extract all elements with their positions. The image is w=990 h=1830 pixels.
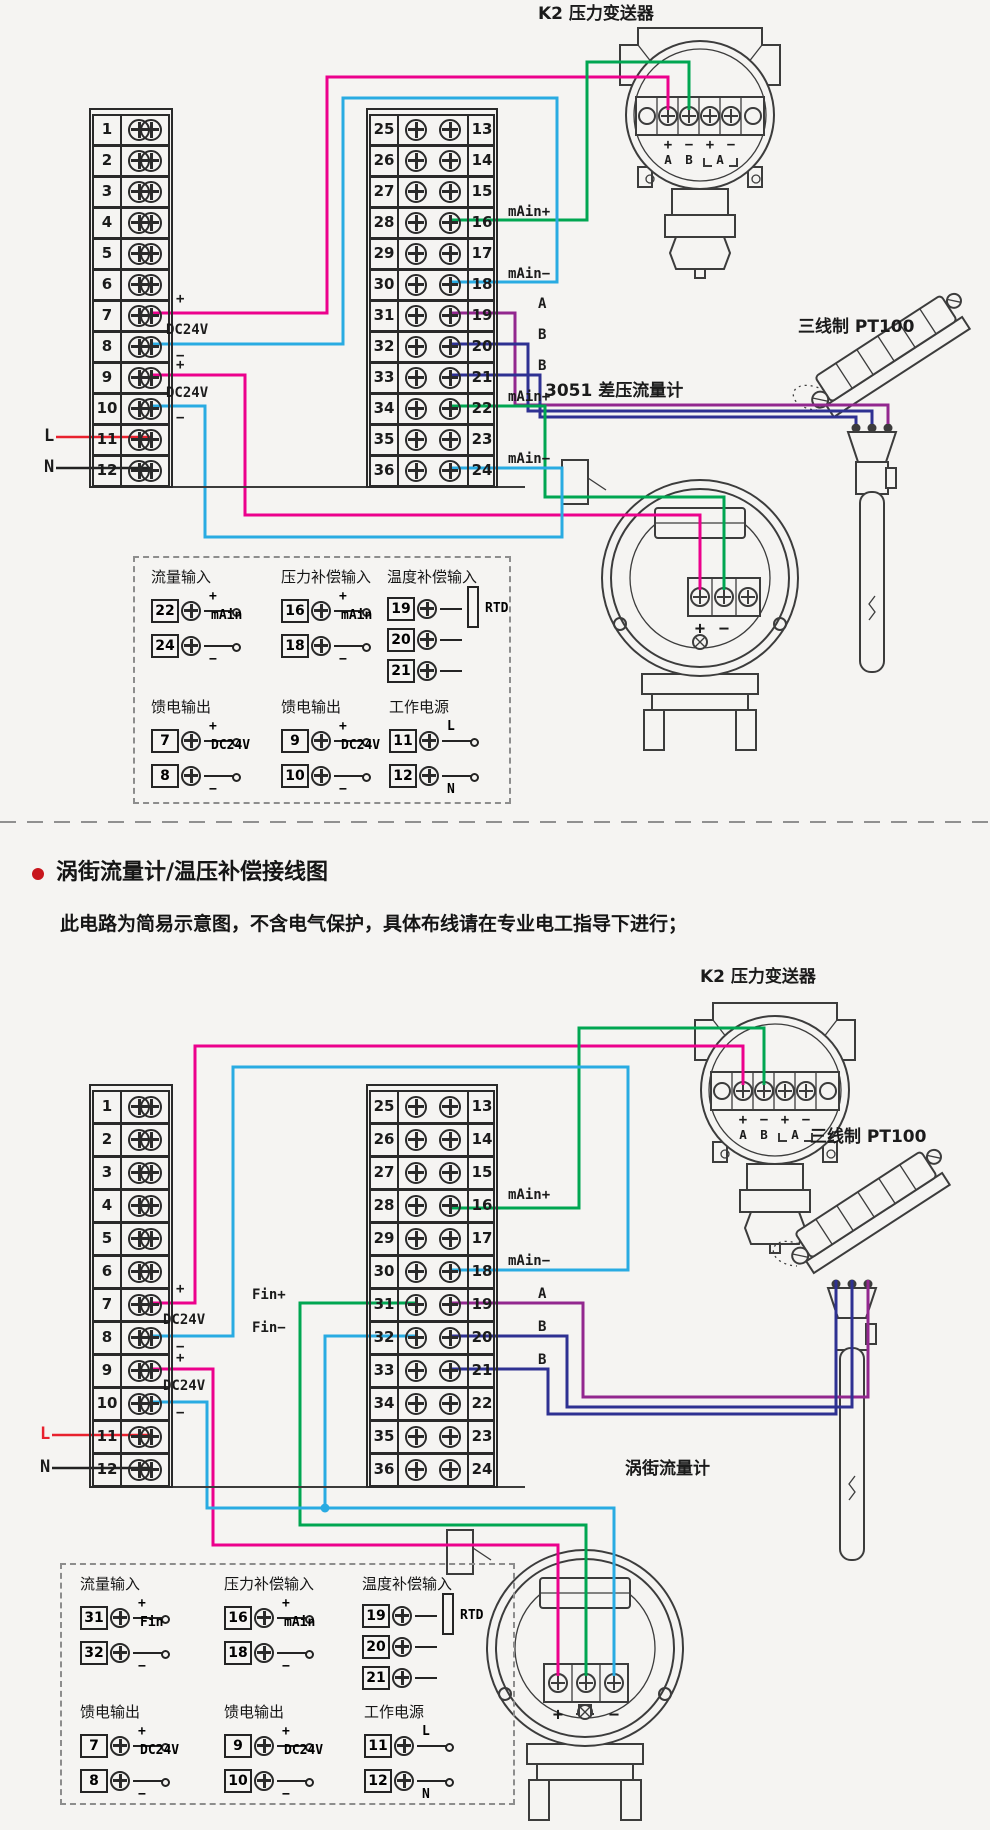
legend-polarity-label: + [339, 720, 347, 733]
screw-terminal-icon [439, 212, 461, 234]
legend-group-title: 流量输入 [151, 570, 271, 585]
screw-terminal-icon [405, 1426, 427, 1448]
section-title: 涡街流量计/温压补偿接线图 [56, 860, 328, 886]
terminal-number-left: 32 [371, 1323, 399, 1353]
screw-terminal-icon [405, 243, 427, 265]
terminal-row: 34 22 [369, 391, 495, 422]
screw-slot [399, 457, 433, 485]
screw-terminal-icon [392, 1668, 412, 1688]
rtd-label: RTD [485, 602, 508, 615]
screw-slot [433, 240, 467, 268]
legend-group-title: 温度补偿输入 [362, 1577, 492, 1592]
terminal-number-left: 29 [371, 240, 399, 268]
screw-terminal-icon [439, 1360, 461, 1382]
legend-terminal-row: 20 [362, 1631, 492, 1662]
terminal-row: 7 [92, 1286, 170, 1319]
screw-slot [433, 1092, 467, 1122]
legend-polarity-label: − [138, 1788, 146, 1801]
d2-k2-port-a2: A [791, 1128, 799, 1142]
d1-dc24v-78-label: DC24V [166, 323, 208, 338]
terminal-number: 10 [94, 1389, 122, 1419]
legend-polarity-label: + [138, 1597, 146, 1610]
terminal-number: 12 [94, 457, 122, 485]
terminal-number: 5 [94, 240, 122, 268]
screw-terminal-icon [140, 460, 162, 482]
screw-terminal-icon [140, 181, 162, 203]
legend-signal-label: DC24V [341, 739, 380, 752]
terminal-number-left: 35 [371, 1422, 399, 1452]
legend-polarity-label: + [209, 720, 217, 733]
legend-group-feed-output-1: 馈电输出 7 + 8 − [80, 1705, 210, 1798]
terminal-row: 2 [92, 143, 170, 174]
wire-pin-icon [417, 1745, 447, 1747]
d1-k2-label: K2 压力变送器 [538, 5, 654, 24]
screw-slot [399, 1389, 433, 1419]
terminal-number-left: 34 [371, 395, 399, 423]
terminal-number-left: 31 [371, 302, 399, 330]
wire-pin-icon [417, 1780, 447, 1782]
terminal-number-right: 23 [467, 426, 495, 454]
legend-group-temp-comp: 温度补偿输入 19 20 21 [362, 1577, 492, 1693]
d1-b20-label: B [538, 328, 546, 343]
screw-terminal-icon [311, 766, 331, 786]
screw-terminal-icon [405, 1360, 427, 1382]
screw-slot [433, 116, 467, 144]
screw-slot [433, 1290, 467, 1320]
wire2-b20-to-pt100 [450, 1280, 852, 1407]
d2-left-terminal-block: 1 2 3 [89, 1084, 173, 1488]
legend-terminal-number: 22 [151, 599, 179, 623]
terminal-number-left: 32 [371, 333, 399, 361]
terminal-row: 4 [92, 205, 170, 236]
screw-terminal-icon [439, 119, 461, 141]
terminal-number: 8 [94, 333, 122, 361]
screw-terminal-icon [140, 429, 162, 451]
terminal-row: 6 [92, 267, 170, 298]
d2-dc24v-910-label: DC24V [163, 1379, 205, 1394]
screw-slot [433, 1125, 467, 1155]
screw-terminal-icon [254, 1771, 274, 1791]
legend-terminal-row: 21 [362, 1662, 492, 1693]
terminal-number-right: 16 [467, 1191, 495, 1221]
legend-terminal-row: 24 − [151, 628, 271, 663]
terminal-number: 11 [94, 426, 122, 454]
terminal-number: 11 [94, 1422, 122, 1452]
legend-polarity-label: − [282, 1660, 290, 1673]
screw-terminal-icon [405, 1393, 427, 1415]
screw-slot [433, 271, 467, 299]
terminal-row: 29 17 [369, 236, 495, 267]
legend-terminal-number: 21 [387, 659, 415, 683]
legend-terminal-row: 12 N [364, 1763, 494, 1798]
screw-terminal-icon [405, 150, 427, 172]
terminal-number: 2 [94, 147, 122, 175]
screw-slot [399, 1191, 433, 1221]
terminal-number-right: 13 [467, 1092, 495, 1122]
wire-pin-icon [440, 608, 462, 610]
terminal-row: 32 20 [369, 329, 495, 360]
screw-terminal-icon [405, 1294, 427, 1316]
terminal-row: 11 [92, 422, 170, 453]
terminal-row: 36 24 [369, 453, 495, 484]
wire-pin-icon [277, 1652, 307, 1654]
legend-terminal-row: 20 [387, 624, 509, 655]
terminal-row: 31 19 [369, 1286, 495, 1319]
terminal-number-left: 30 [371, 1257, 399, 1287]
legend-terminal-row: 21 [387, 655, 509, 686]
terminal-number-right: 20 [467, 333, 495, 361]
screw-terminal-icon [439, 1228, 461, 1250]
legend-terminal-number: 31 [80, 1606, 108, 1630]
screw-slot [399, 271, 433, 299]
screw-terminal-icon [181, 636, 201, 656]
legend-polarity-label: L [422, 1725, 430, 1738]
section-note: 此电路为简易示意图，不含电气保护，具体布线请在专业电工指导下进行； [60, 913, 687, 936]
terminal-row: 33 21 [369, 360, 495, 391]
terminal-row: 2 [92, 1121, 170, 1154]
legend-polarity-label: − [209, 783, 217, 796]
terminal-row: 5 [92, 236, 170, 267]
wire-pin-icon [204, 775, 234, 777]
terminal-row: 34 22 [369, 1385, 495, 1418]
legend-polarity-label: − [209, 653, 217, 666]
terminal-row: 3 [92, 174, 170, 205]
screw-terminal-icon [392, 1637, 412, 1657]
screw-slot [399, 209, 433, 237]
wire2-b21-to-pt100 [450, 1280, 836, 1414]
screw-terminal-icon [181, 731, 201, 751]
screw-slot [433, 1224, 467, 1254]
wire-pin-icon [204, 645, 234, 647]
screw-terminal-icon [439, 150, 461, 172]
screw-terminal-icon [405, 336, 427, 358]
legend-terminal-number: 8 [151, 764, 179, 788]
screw-terminal-icon [405, 119, 427, 141]
wire-pin-icon [334, 645, 364, 647]
screw-slot [399, 1224, 433, 1254]
terminal-number-left: 36 [371, 1455, 399, 1485]
screw-terminal-icon [110, 1771, 130, 1791]
terminal-row: 35 23 [369, 1418, 495, 1451]
terminal-number-right: 14 [467, 147, 495, 175]
terminal-row: 4 [92, 1187, 170, 1220]
legend-polarity-label: + [209, 590, 217, 603]
screw-terminal-icon [140, 1129, 162, 1151]
terminal-number: 7 [94, 1290, 122, 1320]
screw-terminal-icon [405, 1096, 427, 1118]
terminal-number-right: 22 [467, 1389, 495, 1419]
legend-terminal-number: 7 [151, 729, 179, 753]
terminal-row: 12 [92, 453, 170, 484]
terminal-row: 9 [92, 1352, 170, 1385]
terminal-number: 9 [94, 364, 122, 392]
screw-slot [399, 1422, 433, 1452]
legend-terminal-number: 20 [362, 1635, 390, 1659]
terminal-row: 5 [92, 1220, 170, 1253]
screw-terminal-icon [417, 599, 437, 619]
d2-neutral-label: N [40, 1458, 50, 1477]
terminal-number-right: 14 [467, 1125, 495, 1155]
terminal-number-left: 30 [371, 271, 399, 299]
d1-k2-sign4: − [727, 138, 735, 153]
screw-slot [433, 1323, 467, 1353]
legend-terminal-number: 16 [224, 1606, 252, 1630]
terminal-number-right: 19 [467, 1290, 495, 1320]
terminal-number-right: 24 [467, 1455, 495, 1485]
terminal-number-left: 27 [371, 1158, 399, 1188]
rtd-resistor-icon [467, 586, 479, 628]
screw-terminal-icon [311, 731, 331, 751]
legend-group-title: 压力补偿输入 [224, 1577, 354, 1592]
screw-slot [433, 209, 467, 237]
screw-terminal-icon [439, 1327, 461, 1349]
screw-terminal-icon [405, 460, 427, 482]
d1-meter-minus: − [719, 620, 729, 639]
terminal-number: 4 [94, 209, 122, 237]
screw-terminal-icon [439, 1294, 461, 1316]
screw-terminal-icon [110, 1736, 130, 1756]
legend-group-title: 工作电源 [389, 700, 509, 715]
screw-terminal-icon [254, 1736, 274, 1756]
legend-group-title: 流量输入 [80, 1577, 210, 1592]
terminal-number: 12 [94, 1455, 122, 1485]
legend-terminal-row: 8 − [80, 1763, 210, 1798]
screw-slot [433, 1356, 467, 1386]
terminal-number-left: 34 [371, 1389, 399, 1419]
d1-k2-transmitter [620, 28, 780, 278]
screw-terminal-icon [140, 1294, 162, 1316]
screw-slot [433, 457, 467, 485]
screw-slot [399, 1356, 433, 1386]
screw-terminal-icon [140, 1459, 162, 1481]
legend-terminal-row: 10 − [281, 758, 401, 793]
rtd-label: RTD [460, 1609, 483, 1622]
d1-plus9-label: + [176, 358, 184, 373]
terminal-number: 2 [94, 1125, 122, 1155]
screw-terminal-icon [439, 336, 461, 358]
legend-polarity-label: + [282, 1725, 290, 1738]
terminal-number-right: 15 [467, 1158, 495, 1188]
d2-meter-minus: − [609, 1706, 619, 1725]
screw-terminal-icon [394, 1771, 414, 1791]
legend-group-feed-output-2: 馈电输出 9 + 10 − [281, 700, 401, 793]
legend-terminal-number: 21 [362, 1666, 390, 1690]
terminal-number-left: 36 [371, 457, 399, 485]
terminal-number: 1 [94, 1092, 122, 1122]
legend-group-pressure-comp: 压力补偿输入 16 + 18 − [281, 570, 401, 663]
terminal-number: 5 [94, 1224, 122, 1254]
screw-terminal-icon [181, 601, 201, 621]
terminal-number-left: 31 [371, 1290, 399, 1320]
d2-k2-port-a: A [739, 1128, 747, 1142]
legend-terminal-number: 10 [224, 1769, 252, 1793]
screw-terminal-icon [394, 1736, 414, 1756]
terminal-row: 25 13 [369, 1088, 495, 1121]
screw-terminal-icon [140, 1426, 162, 1448]
screw-terminal-icon [405, 429, 427, 451]
screw-terminal-icon [140, 243, 162, 265]
d1-minus10-label: − [176, 411, 184, 426]
d1-main18-label: mAin− [508, 267, 550, 282]
terminal-row: 11 [92, 1418, 170, 1451]
screw-terminal-icon [439, 460, 461, 482]
terminal-number: 6 [94, 271, 122, 299]
terminal-row: 27 15 [369, 1154, 495, 1187]
legend-terminal-row: 12 N [389, 758, 509, 793]
screw-terminal-icon [405, 398, 427, 420]
legend-terminal-row: 18 − [224, 1635, 354, 1670]
terminal-number-left: 26 [371, 1125, 399, 1155]
d1-a19-label: A [538, 297, 546, 312]
terminal-row: 31 19 [369, 298, 495, 329]
screw-slot [433, 302, 467, 330]
legend-group-feed-output-2: 馈电输出 9 + 10 − [224, 1705, 354, 1798]
terminal-row: 8 [92, 329, 170, 360]
terminal-row: 26 14 [369, 1121, 495, 1154]
screw-terminal-icon [140, 1327, 162, 1349]
d2-b21-label: B [538, 1353, 546, 1368]
d2-plus7-label: + [176, 1282, 184, 1297]
screw-terminal-icon [181, 766, 201, 786]
screw-slot [433, 395, 467, 423]
screw-terminal-icon [392, 1606, 412, 1626]
legend-terminal-number: 19 [362, 1604, 390, 1628]
d1-k2-port-b: B [685, 153, 693, 167]
terminal-row: 33 21 [369, 1352, 495, 1385]
d1-neutral-label: N [44, 458, 54, 477]
terminal-row: 1 [92, 1088, 170, 1121]
legend-signal-label: DC24V [211, 739, 250, 752]
screw-terminal-icon [405, 1162, 427, 1184]
d2-main16-label: mAin+ [508, 1188, 550, 1203]
screw-terminal-icon [439, 274, 461, 296]
terminal-number-right: 18 [467, 271, 495, 299]
terminal-number-right: 23 [467, 1422, 495, 1452]
d1-meter-label: 3051 差压流量计 [545, 382, 683, 401]
d2-main18-label: mAin− [508, 1254, 550, 1269]
terminal-number-right: 17 [467, 240, 495, 268]
terminal-number-right: 21 [467, 1356, 495, 1386]
d1-k2-sign3: + [706, 138, 714, 153]
screw-terminal-icon [311, 601, 331, 621]
screw-terminal-icon [405, 181, 427, 203]
legend-group-title: 工作电源 [364, 1705, 494, 1720]
wire-pin-icon [334, 775, 364, 777]
screw-terminal-icon [140, 274, 162, 296]
legend-group-power: 工作电源 11 L 12 N [389, 700, 509, 793]
legend-terminal-number: 16 [281, 599, 309, 623]
wire-pin-icon [442, 740, 472, 742]
terminal-number-left: 29 [371, 1224, 399, 1254]
d1-meter-plus: + [695, 620, 705, 639]
screw-slot [399, 1290, 433, 1320]
legend-group-power: 工作电源 11 L 12 N [364, 1705, 494, 1798]
screw-terminal-icon [439, 243, 461, 265]
screw-slot [399, 395, 433, 423]
terminal-row: 7 [92, 298, 170, 329]
screw-terminal-icon [417, 630, 437, 650]
terminal-row: 35 23 [369, 422, 495, 453]
legend-group-title: 馈电输出 [224, 1705, 354, 1720]
terminal-row: 28 16 [369, 1187, 495, 1220]
terminal-number-left: 27 [371, 178, 399, 206]
legend-terminal-row: 8 − [151, 758, 271, 793]
legend-group-title: 馈电输出 [281, 700, 401, 715]
screw-terminal-icon [140, 1393, 162, 1415]
terminal-row: 8 [92, 1319, 170, 1352]
legend-polarity-label: N [422, 1788, 430, 1801]
screw-terminal-icon [439, 429, 461, 451]
wire2-junction-dot [321, 1504, 330, 1513]
d1-main24-label: mAin− [508, 452, 550, 467]
terminal-row: 28 16 [369, 205, 495, 236]
terminal-number-right: 17 [467, 1224, 495, 1254]
terminal-row: 9 [92, 360, 170, 391]
d1-left-terminal-block: 1 2 3 [89, 108, 173, 488]
legend-polarity-label: + [138, 1725, 146, 1738]
terminal-row: 29 17 [369, 1220, 495, 1253]
wire-pin-icon [277, 1780, 307, 1782]
wire2-a19-to-pt100 [450, 1280, 868, 1397]
screw-terminal-icon [140, 1195, 162, 1217]
terminal-row: 3 [92, 1154, 170, 1187]
terminal-number-left: 35 [371, 426, 399, 454]
d2-live-label: L [40, 1425, 50, 1444]
screw-terminal-icon [439, 1162, 461, 1184]
d1-legend-box: 流量输入 22 + 24 − [133, 556, 511, 804]
legend-terminal-number: 19 [387, 597, 415, 621]
screw-terminal-icon [405, 274, 427, 296]
screw-slot [433, 1422, 467, 1452]
screw-slot [433, 1191, 467, 1221]
d1-main16-label: mAin+ [508, 205, 550, 220]
legend-group-pressure-comp: 压力补偿输入 16 + 18 − [224, 1577, 354, 1670]
screw-slot [399, 1158, 433, 1188]
d1-3051-flowmeter [562, 460, 798, 750]
screw-terminal-icon [439, 1129, 461, 1151]
legend-signal-label: mAin [341, 609, 372, 622]
screw-terminal-icon [140, 1162, 162, 1184]
wire-pin-icon [415, 1615, 437, 1617]
screw-slot [399, 333, 433, 361]
screw-terminal-icon [140, 119, 162, 141]
screw-terminal-icon [439, 305, 461, 327]
screw-slot [399, 178, 433, 206]
terminal-row: 25 13 [369, 112, 495, 143]
d2-plus9-label: + [176, 1351, 184, 1366]
legend-group-title: 馈电输出 [80, 1705, 210, 1720]
terminal-row: 26 14 [369, 143, 495, 174]
screw-terminal-icon [140, 150, 162, 172]
terminal-number: 6 [94, 1257, 122, 1287]
legend-polarity-label: + [339, 590, 347, 603]
legend-group-flow-input: 流量输入 31 + 32 − [80, 1577, 210, 1670]
screw-terminal-icon [110, 1608, 130, 1628]
d1-plus7-label: + [176, 292, 184, 307]
terminal-row: 10 [92, 391, 170, 422]
screw-terminal-icon [140, 212, 162, 234]
screw-slot [433, 333, 467, 361]
terminal-number-right: 16 [467, 209, 495, 237]
d2-b20-label: B [538, 1320, 546, 1335]
screw-slot [399, 1323, 433, 1353]
legend-terminal-number: 12 [389, 764, 417, 788]
legend-terminal-row: 11 L [364, 1728, 494, 1763]
d2-k2-sign3: + [781, 1113, 789, 1128]
d2-k2-label: K2 压力变送器 [700, 968, 816, 987]
legend-terminal-number: 18 [224, 1641, 252, 1665]
screw-slot [433, 1455, 467, 1485]
